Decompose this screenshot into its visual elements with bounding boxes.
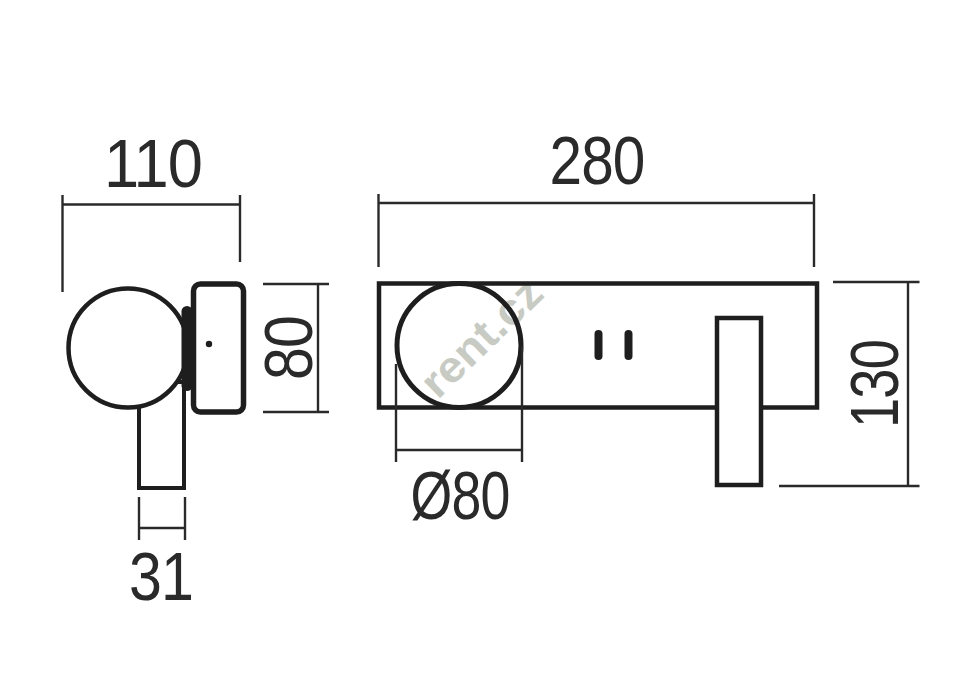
drawing-canvas: rent.cz bbox=[0, 0, 980, 680]
dim-280: 280 bbox=[379, 122, 815, 267]
technical-drawing: rent.cz bbox=[0, 0, 980, 680]
side-view bbox=[69, 284, 244, 488]
dim-80: 80 bbox=[250, 284, 329, 412]
dim-31-label: 31 bbox=[129, 538, 193, 614]
dim-110: 110 bbox=[63, 125, 241, 292]
dim-31: 31 bbox=[129, 497, 193, 614]
front-view-spot-cylinder bbox=[717, 318, 761, 485]
dim-110-label: 110 bbox=[104, 125, 202, 201]
dim-ball-diameter-label: Ø80 bbox=[411, 457, 510, 533]
dim-130-label: 130 bbox=[836, 340, 912, 428]
dim-80-label: 80 bbox=[250, 316, 326, 380]
side-view-fixing-dot bbox=[206, 341, 212, 347]
side-view-wall-plate bbox=[194, 284, 244, 412]
front-view-switch-right bbox=[625, 330, 633, 360]
side-view-ball bbox=[69, 289, 188, 408]
front-view-switch-left bbox=[595, 330, 603, 360]
dim-280-label: 280 bbox=[550, 122, 645, 198]
